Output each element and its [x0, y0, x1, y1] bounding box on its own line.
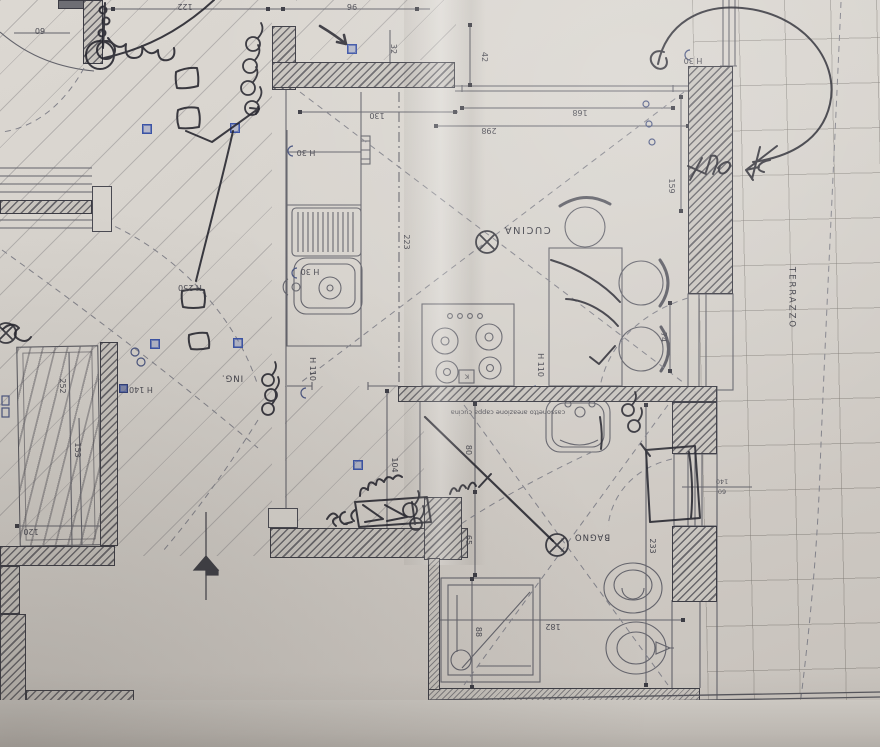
dim-label: 32	[389, 44, 397, 54]
dim-label: 88	[474, 627, 482, 637]
dim-label: 104	[390, 457, 398, 472]
room-label-bathroom: BAGNO	[574, 532, 610, 541]
vent-note: cassonetto areazione cappa cucina	[451, 409, 565, 416]
height-label: H 250	[178, 283, 202, 291]
dim-label: 130	[369, 111, 384, 119]
room-label-terrace: TERRAZZO	[787, 267, 796, 329]
height-label: H 30	[297, 148, 316, 156]
height-label: H 30	[684, 56, 703, 64]
dim-label: 96	[347, 2, 357, 10]
dim-label: 122	[177, 2, 192, 10]
dim-label: 252	[58, 378, 66, 393]
dim-label: 223	[402, 234, 410, 249]
height-label: H 110	[536, 353, 544, 377]
floor-plan-photo: 122 96 60 32 130 42 168 298 H 30 159 74 …	[0, 0, 880, 747]
dim-label: 298	[481, 126, 496, 134]
dim-label: 168	[572, 108, 587, 116]
dim-label: 233	[648, 538, 656, 553]
hob-k-mark: K	[465, 373, 469, 380]
pen-annotations	[0, 0, 880, 747]
room-label-entry: ING.	[221, 373, 243, 382]
height-label: H 110	[308, 357, 316, 381]
window-dim-label: 140	[716, 478, 728, 485]
dim-label: 65	[464, 535, 472, 545]
height-label: H 140	[129, 385, 153, 393]
dim-label: 42	[480, 52, 488, 62]
dim-label: 159	[667, 178, 675, 193]
height-label: H 30	[301, 267, 320, 275]
paper-bottom-strip	[0, 700, 880, 747]
dim-label: 80	[464, 445, 472, 455]
dim-label: 120	[23, 527, 38, 535]
dim-label: 60	[35, 26, 45, 34]
window-dim-label: 60	[718, 488, 726, 495]
dim-label: 153	[73, 442, 81, 457]
room-label-kitchen: CUCINA	[503, 224, 551, 234]
dim-label: 74	[659, 332, 667, 342]
dim-label: 182	[545, 622, 560, 630]
pen-circle-glyphs	[241, 23, 642, 530]
